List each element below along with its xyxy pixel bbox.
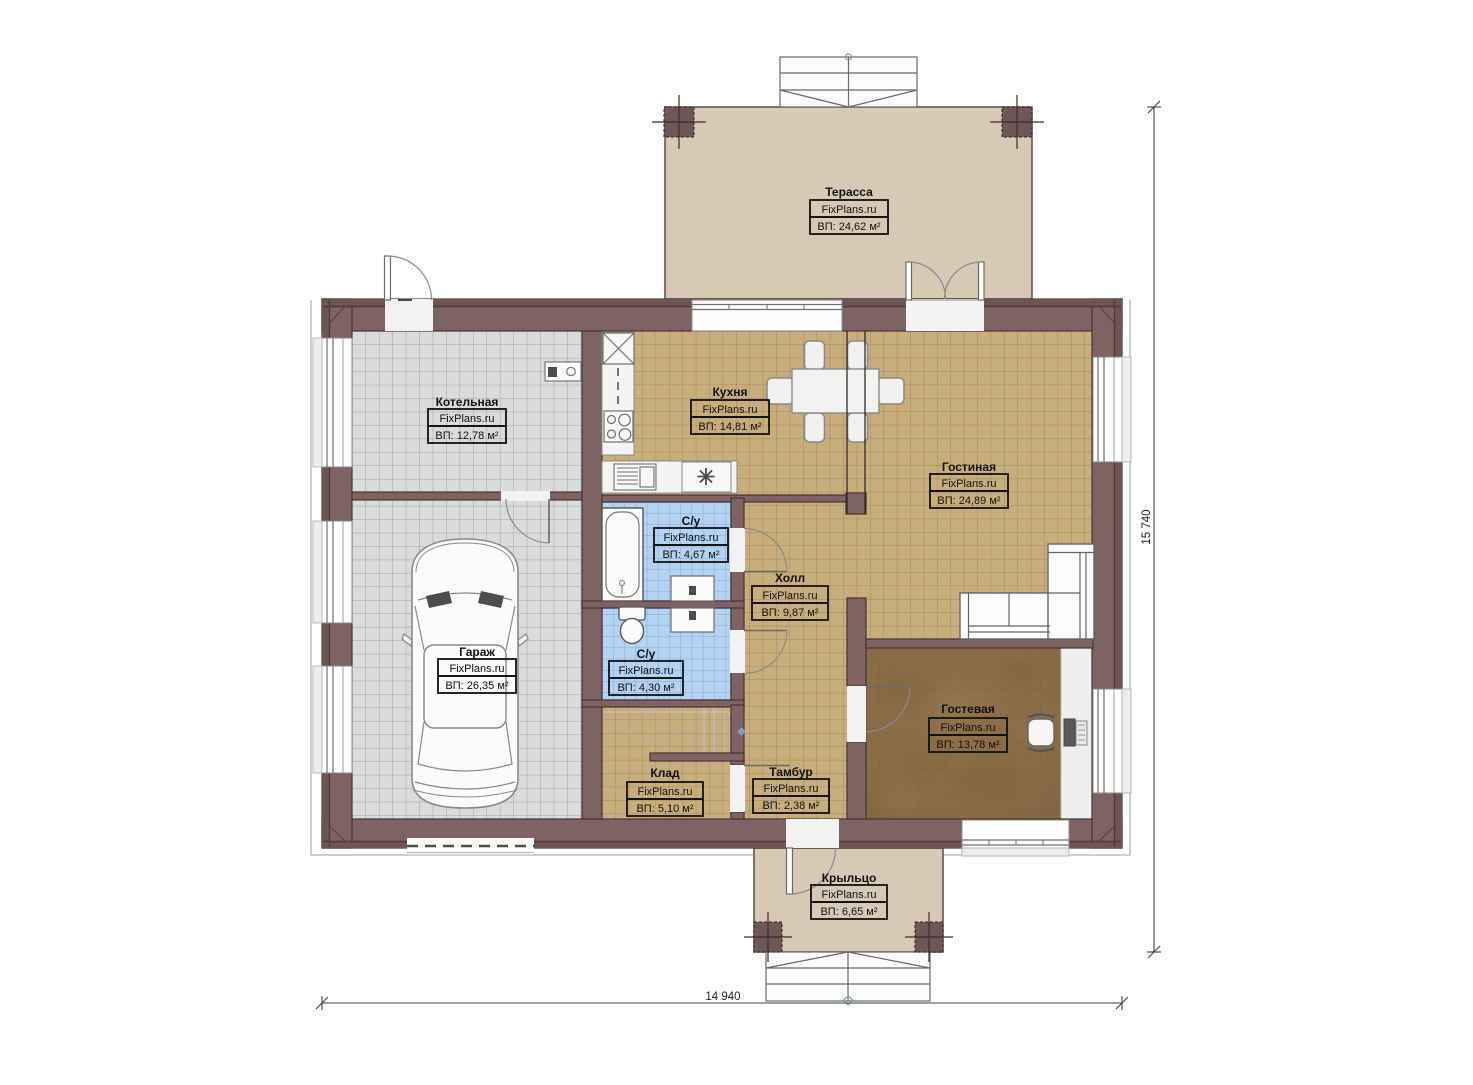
svg-text:Холл: Холл: [775, 571, 805, 585]
svg-text:Тамбур: Тамбур: [769, 765, 813, 779]
svg-text:ВП: 24,89 м²: ВП: 24,89 м²: [937, 495, 1001, 507]
svg-text:Терасса: Терасса: [825, 185, 873, 199]
svg-text:14 940: 14 940: [705, 991, 740, 1003]
svg-text:Крыльцо: Крыльцо: [822, 871, 877, 885]
svg-text:ВП: 26,35 м²: ВП: 26,35 м²: [445, 680, 509, 692]
svg-text:FixPlans.ru: FixPlans.ru: [449, 663, 504, 675]
svg-text:ВП: 14,81 м²: ВП: 14,81 м²: [698, 421, 762, 433]
svg-text:ВП: 5,10 м²: ВП: 5,10 м²: [636, 803, 693, 815]
svg-text:Котельная: Котельная: [436, 395, 499, 409]
svg-text:ВП: 4,30 м²: ВП: 4,30 м²: [617, 682, 674, 694]
svg-text:Гостиная: Гостиная: [942, 460, 996, 474]
svg-text:FixPlans.ru: FixPlans.ru: [940, 722, 995, 734]
svg-text:ВП: 12,78 м²: ВП: 12,78 м²: [435, 430, 499, 442]
svg-text:Клад: Клад: [650, 766, 680, 780]
svg-text:15 740: 15 740: [1141, 509, 1153, 544]
svg-text:Гостевая: Гостевая: [941, 702, 995, 716]
svg-text:ВП: 9,87 м²: ВП: 9,87 м²: [761, 607, 818, 619]
svg-text:ВП: 2,38 м²: ВП: 2,38 м²: [762, 800, 819, 812]
svg-text:FixPlans.ru: FixPlans.ru: [821, 889, 876, 901]
svg-text:ВП: 6,65 м²: ВП: 6,65 м²: [820, 906, 877, 918]
svg-text:Гараж: Гараж: [459, 645, 495, 659]
svg-text:FixPlans.ru: FixPlans.ru: [637, 786, 692, 798]
svg-text:FixPlans.ru: FixPlans.ru: [702, 404, 757, 416]
svg-text:ВП: 4,67 м²: ВП: 4,67 м²: [662, 549, 719, 561]
svg-text:Кухня: Кухня: [712, 385, 747, 399]
svg-text:FixPlans.ru: FixPlans.ru: [763, 783, 818, 795]
svg-text:С/у: С/у: [637, 647, 656, 661]
svg-text:FixPlans.ru: FixPlans.ru: [663, 532, 718, 544]
svg-text:ВП: 24,62 м²: ВП: 24,62 м²: [817, 221, 881, 233]
svg-text:FixPlans.ru: FixPlans.ru: [762, 590, 817, 602]
svg-text:FixPlans.ru: FixPlans.ru: [439, 413, 494, 425]
svg-text:С/у: С/у: [682, 514, 701, 528]
svg-text:FixPlans.ru: FixPlans.ru: [821, 204, 876, 216]
svg-text:ВП: 13,78 м²: ВП: 13,78 м²: [936, 739, 1000, 751]
svg-text:FixPlans.ru: FixPlans.ru: [941, 478, 996, 490]
svg-text:FixPlans.ru: FixPlans.ru: [618, 665, 673, 677]
